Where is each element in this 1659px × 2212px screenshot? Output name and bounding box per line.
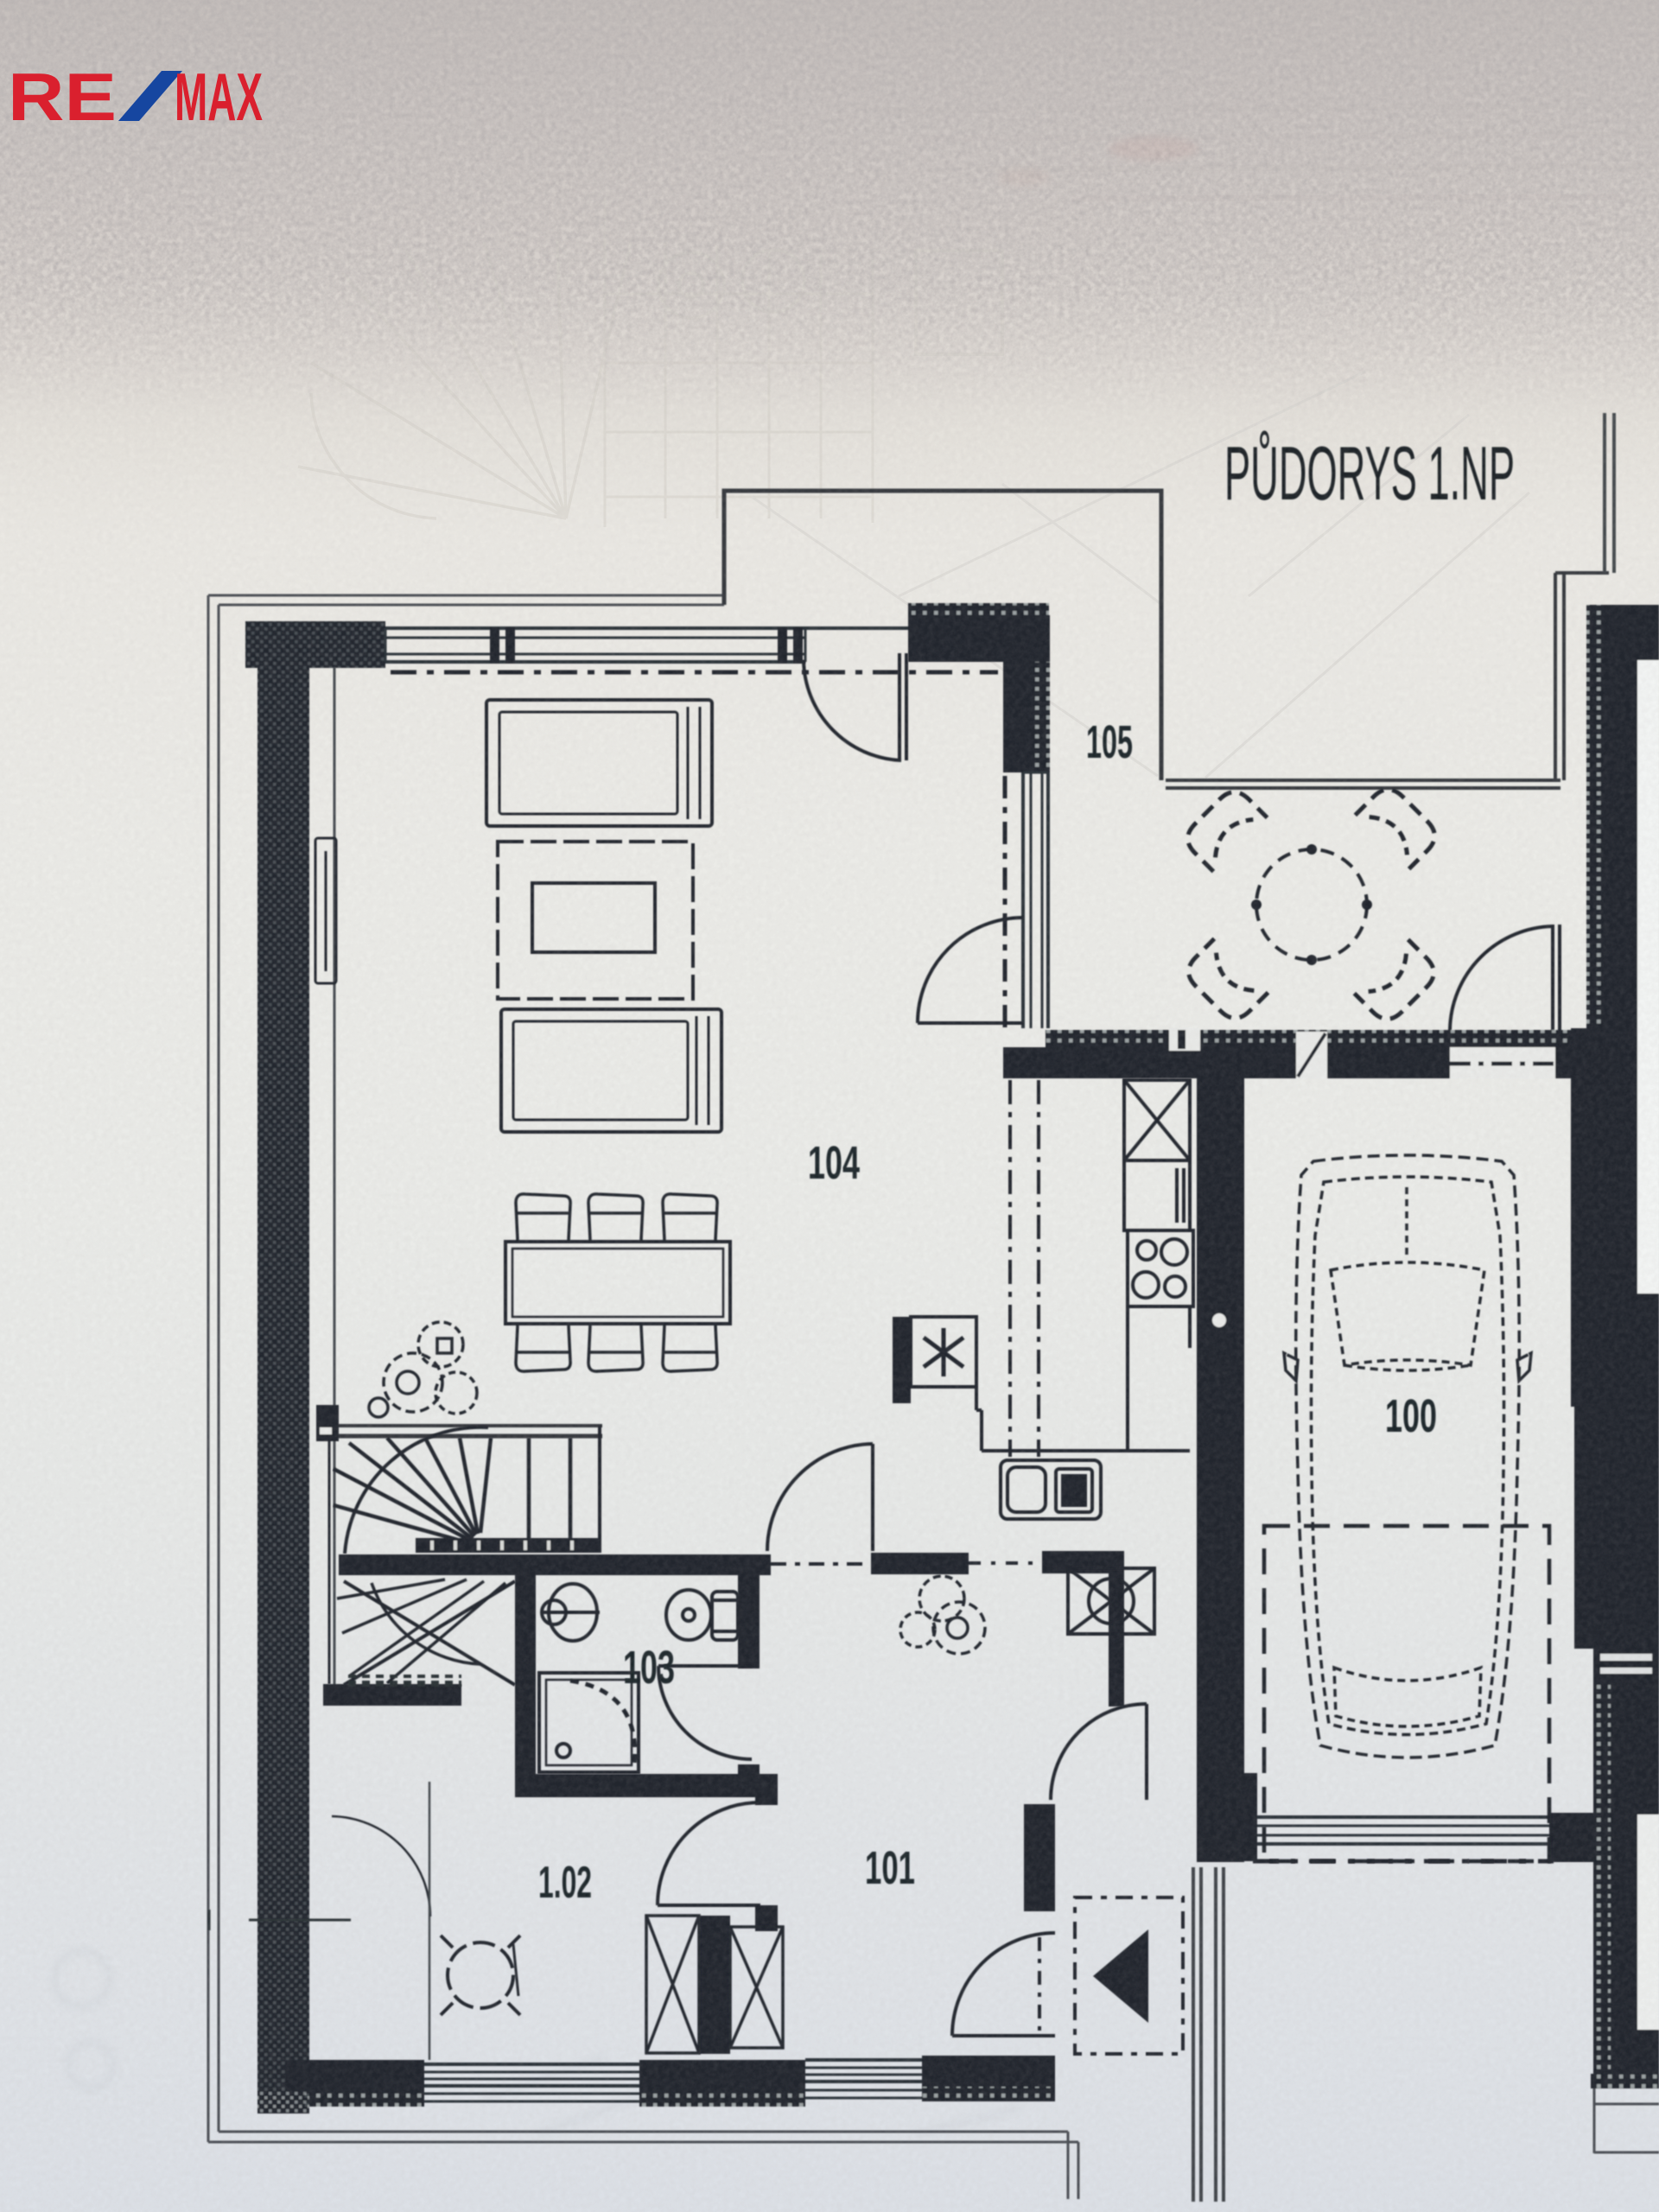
svg-text:MAX: MAX xyxy=(175,59,263,135)
svg-text:RE: RE xyxy=(8,59,117,135)
